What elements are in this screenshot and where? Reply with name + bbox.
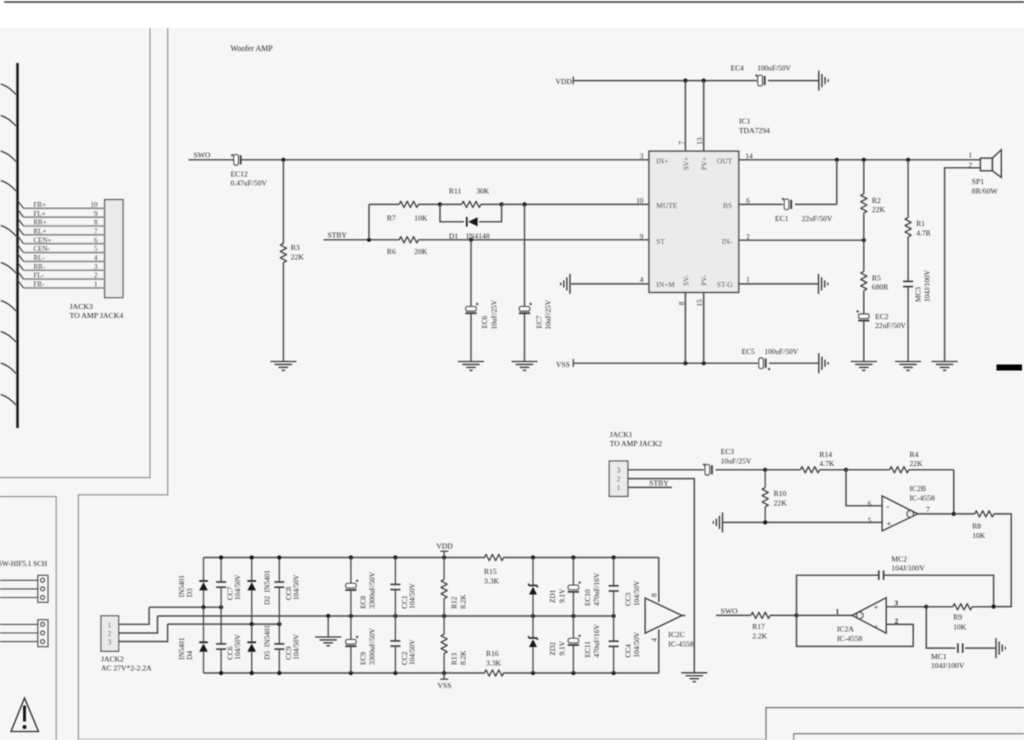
- svg-text:6: 6: [868, 500, 872, 508]
- svg-text:R4: R4: [910, 450, 919, 459]
- svg-text:SP1: SP1: [972, 177, 984, 186]
- svg-text:R16: R16: [486, 649, 499, 658]
- svg-text:VSS: VSS: [556, 360, 570, 369]
- svg-text:IC2A: IC2A: [837, 625, 854, 634]
- svg-text:TO AMP JACK4: TO AMP JACK4: [70, 311, 124, 320]
- svg-text:IC-4558: IC-4558: [668, 639, 694, 648]
- svg-text:7: 7: [926, 506, 930, 514]
- svg-text:R8: R8: [972, 521, 981, 530]
- svg-text:R10: R10: [774, 489, 787, 498]
- svg-text:SW-HIF5.1 SCH: SW-HIF5.1 SCH: [0, 560, 47, 568]
- svg-text:MC1: MC1: [931, 652, 947, 661]
- svg-text:FR-: FR-: [34, 281, 46, 289]
- svg-text:MC2: MC2: [891, 555, 907, 564]
- svg-text:EC8: EC8: [359, 595, 368, 608]
- svg-text:0.47uF/50V: 0.47uF/50V: [231, 179, 268, 188]
- svg-text:RL+: RL+: [34, 227, 47, 235]
- svg-text:TDA7294: TDA7294: [739, 126, 770, 135]
- svg-text:2: 2: [969, 161, 973, 169]
- svg-text:1: 1: [746, 276, 750, 284]
- svg-text:+: +: [887, 520, 892, 529]
- svg-text:EC12: EC12: [231, 170, 249, 179]
- svg-text:PV+: PV+: [699, 157, 708, 170]
- svg-text:EC7: EC7: [535, 315, 544, 328]
- svg-text:SWO: SWO: [721, 606, 738, 615]
- svg-text:AC 27V*2-2.2A: AC 27V*2-2.2A: [101, 664, 152, 673]
- svg-text:CEN+: CEN+: [34, 236, 52, 244]
- svg-text:D4: D4: [185, 650, 194, 659]
- svg-text:STBY: STBY: [649, 479, 669, 488]
- svg-text:8.2K: 8.2K: [458, 594, 467, 609]
- svg-text:R3: R3: [291, 243, 300, 252]
- svg-text:IN+M: IN+M: [656, 280, 675, 289]
- svg-text:RR-: RR-: [34, 263, 46, 271]
- svg-text:SWO: SWO: [194, 151, 211, 160]
- svg-text:9: 9: [640, 233, 644, 241]
- svg-text:JACK3: JACK3: [70, 302, 93, 311]
- svg-text:ST: ST: [656, 237, 665, 246]
- svg-text:R15: R15: [484, 567, 497, 576]
- svg-text:9: 9: [94, 210, 98, 218]
- svg-text:FL-: FL-: [34, 272, 45, 280]
- svg-text:13: 13: [695, 137, 704, 145]
- svg-text:-: -: [875, 621, 878, 630]
- svg-text:2: 2: [94, 272, 98, 280]
- svg-text:3: 3: [640, 153, 644, 161]
- svg-text:3.3K: 3.3K: [486, 658, 501, 667]
- svg-text:FL+: FL+: [34, 210, 46, 218]
- svg-text:ST-G: ST-G: [717, 280, 733, 289]
- svg-text:RL-: RL-: [34, 254, 46, 262]
- svg-text:BS: BS: [723, 201, 732, 210]
- svg-text:100uF/50V: 100uF/50V: [764, 347, 798, 356]
- svg-text:2: 2: [617, 475, 621, 483]
- svg-text:30K: 30K: [476, 187, 490, 196]
- svg-text:10: 10: [91, 201, 99, 209]
- svg-text:RR+: RR+: [34, 219, 47, 227]
- svg-text:10K: 10K: [414, 213, 428, 222]
- svg-text:4.7R: 4.7R: [916, 228, 931, 237]
- svg-text:8: 8: [94, 219, 98, 227]
- svg-text:-: -: [887, 502, 890, 511]
- svg-text:EC6: EC6: [480, 315, 489, 328]
- svg-text:3: 3: [108, 639, 112, 647]
- svg-text:104/50V: 104/50V: [233, 633, 242, 659]
- svg-text:22K: 22K: [872, 205, 886, 214]
- svg-text:6: 6: [94, 236, 98, 244]
- svg-text:10K: 10K: [953, 623, 967, 632]
- svg-text:EC10: EC10: [583, 589, 592, 606]
- svg-text:JACK2: JACK2: [101, 654, 124, 663]
- svg-text:100uF/50V: 100uF/50V: [757, 63, 791, 72]
- svg-text:R7: R7: [387, 213, 396, 222]
- svg-text:5: 5: [868, 517, 872, 525]
- svg-text:104/50V: 104/50V: [632, 580, 641, 606]
- svg-text:IN-: IN-: [722, 237, 733, 246]
- svg-text:4: 4: [94, 254, 98, 262]
- svg-text:R9: R9: [953, 613, 962, 622]
- svg-text:R17: R17: [752, 622, 765, 631]
- svg-text:22uF/50V: 22uF/50V: [802, 214, 833, 223]
- svg-text:1: 1: [94, 281, 98, 289]
- svg-text:22K: 22K: [910, 459, 924, 468]
- svg-text:8: 8: [650, 593, 659, 597]
- svg-text:IC-4558: IC-4558: [837, 634, 863, 643]
- svg-text:OUT: OUT: [717, 157, 733, 166]
- svg-text:EC1: EC1: [775, 214, 789, 223]
- svg-text:IC2B: IC2B: [910, 484, 926, 493]
- svg-text:IC-4558: IC-4558: [910, 493, 936, 502]
- svg-text:EC9: EC9: [359, 652, 368, 665]
- svg-text:4: 4: [640, 276, 644, 284]
- svg-text:R1: R1: [916, 219, 925, 228]
- svg-text:4: 4: [650, 638, 659, 642]
- svg-text:1: 1: [617, 484, 621, 492]
- svg-text:22K: 22K: [774, 499, 788, 508]
- svg-text:20K: 20K: [414, 247, 428, 256]
- svg-text:R6: R6: [387, 247, 396, 256]
- svg-text:104/50V: 104/50V: [292, 574, 301, 600]
- svg-text:MC3: MC3: [914, 287, 923, 302]
- svg-text:8R/60W: 8R/60W: [972, 186, 999, 195]
- svg-text:EC4: EC4: [731, 63, 744, 72]
- svg-text:VSS: VSS: [438, 681, 452, 690]
- svg-text:470uF/16V: 470uF/16V: [592, 572, 601, 606]
- svg-text:2: 2: [108, 630, 112, 638]
- svg-text:ZD1: ZD1: [548, 589, 557, 603]
- svg-text:3.3K: 3.3K: [484, 576, 499, 585]
- svg-text:15: 15: [695, 299, 704, 307]
- svg-text:1: 1: [108, 621, 112, 629]
- svg-text:VDD: VDD: [556, 77, 573, 86]
- svg-text:EC2: EC2: [875, 312, 889, 321]
- svg-text:IC1: IC1: [739, 117, 751, 126]
- svg-text:SV+: SV+: [681, 157, 690, 170]
- svg-text:3300uF/50V: 3300uF/50V: [368, 571, 377, 609]
- svg-text:7: 7: [94, 227, 98, 235]
- svg-text:1: 1: [969, 151, 973, 159]
- svg-text:PV-: PV-: [699, 274, 708, 286]
- svg-text:EC5: EC5: [742, 347, 755, 356]
- svg-text:3: 3: [617, 467, 621, 475]
- svg-text:2.2K: 2.2K: [752, 631, 767, 640]
- svg-text:R5: R5: [872, 273, 881, 282]
- svg-text:D3: D3: [185, 588, 194, 597]
- svg-text:22uF/50V: 22uF/50V: [875, 321, 906, 330]
- svg-text:R14: R14: [819, 450, 832, 459]
- svg-text:EC3: EC3: [721, 447, 735, 456]
- svg-text:EC11: EC11: [583, 641, 592, 658]
- svg-text:D1: D1: [449, 231, 458, 240]
- svg-text:680R: 680R: [872, 283, 889, 292]
- svg-text:10uF/25V: 10uF/25V: [489, 299, 498, 329]
- svg-text:104/50V: 104/50V: [408, 583, 417, 609]
- svg-text:IN+: IN+: [656, 157, 668, 166]
- svg-text:9.1V: 9.1V: [557, 640, 566, 655]
- svg-text:TO AMP JACK2: TO AMP JACK2: [610, 439, 663, 448]
- svg-text:104/50V: 104/50V: [408, 639, 417, 665]
- svg-text:CEN-: CEN-: [34, 245, 51, 253]
- svg-text:R11: R11: [449, 187, 462, 196]
- svg-text:R12: R12: [449, 596, 458, 609]
- svg-text:10: 10: [636, 197, 644, 205]
- svg-text:D5 IN5401: D5 IN5401: [262, 624, 271, 659]
- svg-text:SV-: SV-: [681, 274, 690, 286]
- svg-text:D2 IN5401: D2 IN5401: [262, 570, 271, 605]
- svg-text:104J/100V: 104J/100V: [891, 564, 925, 573]
- svg-text:R2: R2: [872, 196, 881, 205]
- svg-text:3: 3: [894, 598, 898, 607]
- svg-text:6: 6: [746, 197, 750, 205]
- svg-text:5: 5: [94, 245, 98, 253]
- svg-text:+: +: [874, 603, 879, 612]
- svg-text:JACK1: JACK1: [610, 430, 633, 439]
- svg-text:3: 3: [94, 263, 98, 271]
- svg-text:104/50V: 104/50V: [632, 631, 641, 657]
- svg-text:22K: 22K: [291, 252, 305, 261]
- svg-text:104/50V: 104/50V: [292, 633, 301, 659]
- svg-text:3300uF/50V: 3300uF/50V: [368, 627, 377, 665]
- svg-text:104J/100V: 104J/100V: [923, 269, 932, 302]
- svg-text:FR+: FR+: [34, 201, 47, 209]
- svg-text:10uF/25V: 10uF/25V: [544, 299, 553, 329]
- svg-text:10K: 10K: [972, 531, 986, 540]
- svg-text:1: 1: [835, 607, 839, 616]
- svg-text:470uF/16V: 470uF/16V: [592, 624, 601, 658]
- svg-text:R13: R13: [449, 652, 458, 665]
- svg-text:Woofer AMP: Woofer AMP: [231, 44, 274, 53]
- svg-text:9.1V: 9.1V: [557, 588, 566, 603]
- svg-text:ZD2: ZD2: [548, 642, 557, 656]
- svg-text:STBY: STBY: [328, 231, 348, 240]
- svg-text:8.2K: 8.2K: [458, 650, 467, 665]
- svg-text:IC2C: IC2C: [668, 630, 684, 639]
- svg-text:104J/100V: 104J/100V: [931, 661, 965, 670]
- svg-text:10uF/25V: 10uF/25V: [721, 457, 752, 466]
- svg-text:VDD: VDD: [436, 542, 453, 551]
- svg-text:104/50V: 104/50V: [233, 574, 242, 600]
- svg-text:4.7K: 4.7K: [819, 459, 834, 468]
- svg-text:MUTE: MUTE: [656, 201, 677, 210]
